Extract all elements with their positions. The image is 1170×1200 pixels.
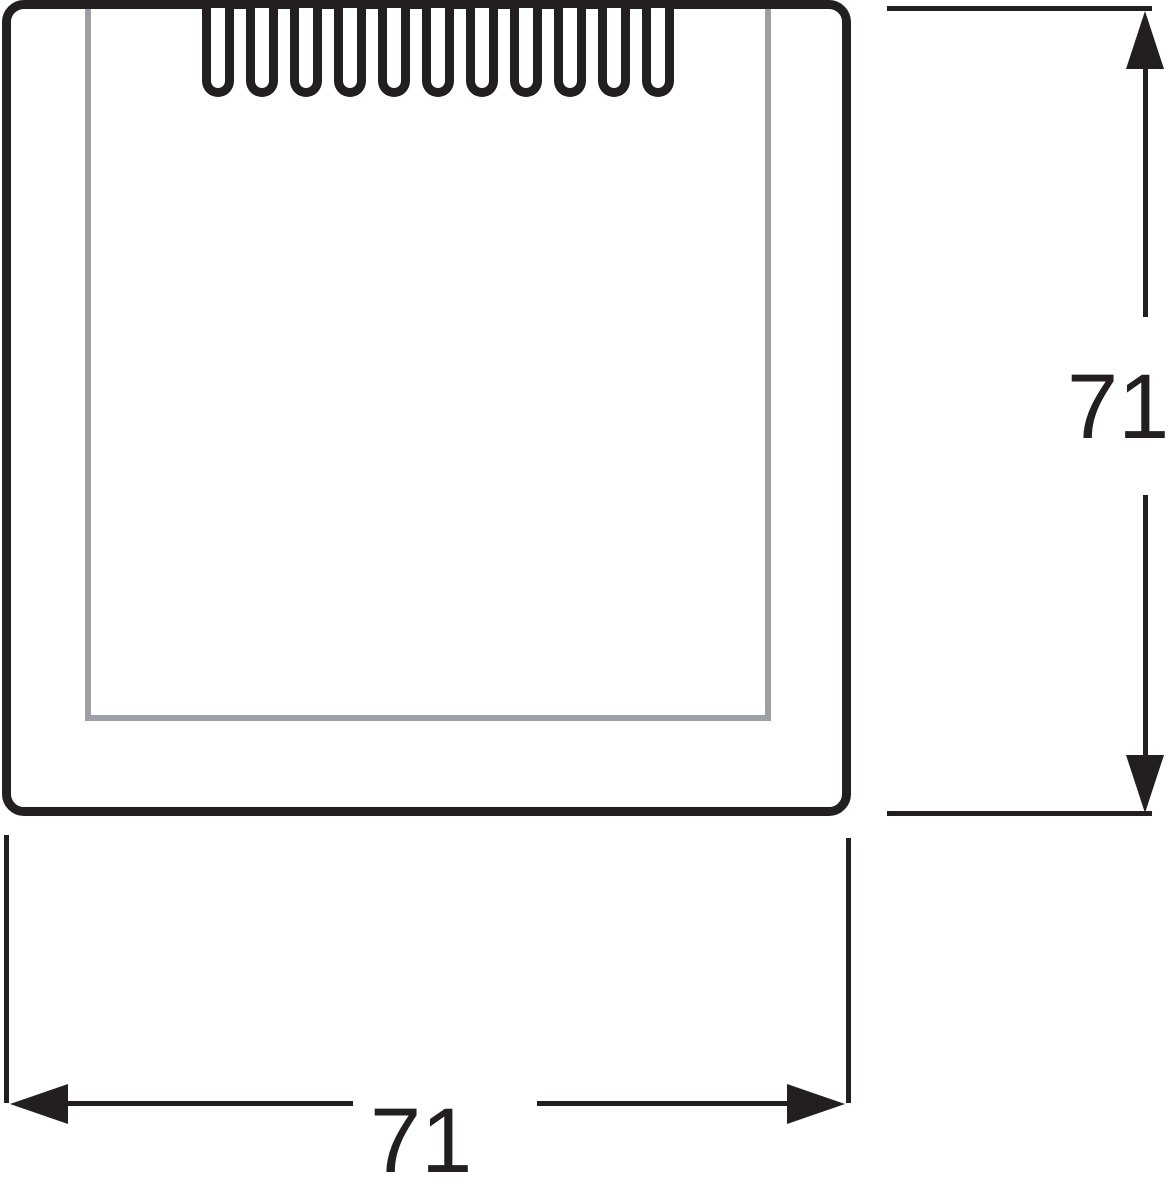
height-dimension-line-lower <box>1143 495 1148 757</box>
vent-slot <box>510 8 542 97</box>
width-dimension-line-left <box>68 1101 353 1106</box>
width-dimension-label: 71 <box>370 1095 472 1187</box>
vent-slot <box>642 8 674 97</box>
inner-frame-outline <box>85 9 771 721</box>
vent-slot <box>290 8 322 97</box>
vent-slot <box>554 8 586 97</box>
vent-slot <box>202 8 234 97</box>
width-dimension-line-right <box>537 1101 787 1106</box>
drawing-canvas: 71 71 <box>0 0 1170 1200</box>
vent-slot <box>422 8 454 97</box>
arrow-left-icon <box>10 1084 68 1124</box>
height-dimension-line-upper <box>1143 67 1148 317</box>
vent-slot <box>466 8 498 97</box>
height-dimension-label: 71 <box>1067 361 1169 453</box>
width-extension-line-left <box>4 835 9 1103</box>
vent-slot <box>334 8 366 97</box>
height-extension-line-top <box>887 6 1152 11</box>
arrow-right-icon <box>787 1084 845 1124</box>
vent-slots <box>202 8 674 97</box>
arrow-up-icon <box>1126 11 1164 69</box>
height-extension-line-bottom <box>887 811 1152 816</box>
vent-slot <box>246 8 278 97</box>
arrow-down-icon <box>1126 755 1164 813</box>
vent-slot <box>598 8 630 97</box>
width-extension-line-right <box>846 838 851 1103</box>
vent-slot <box>378 8 410 97</box>
